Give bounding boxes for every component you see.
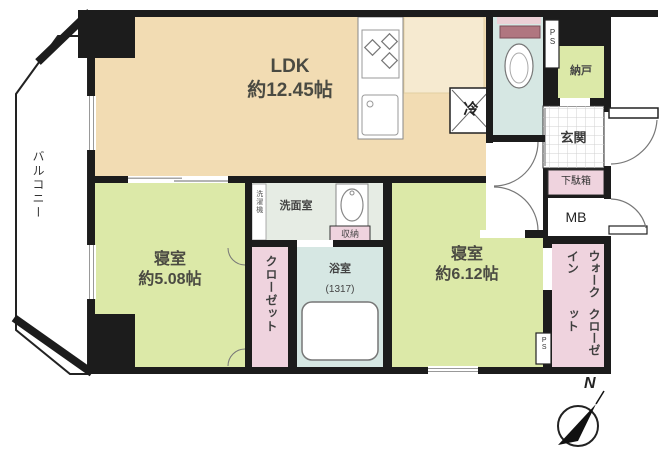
bathtub — [302, 302, 378, 360]
nando-label: 納戸 — [558, 65, 604, 79]
window-ldk — [87, 96, 96, 150]
wall-ldk-right — [486, 17, 493, 143]
mb-door-leaf — [609, 226, 647, 234]
ldk-size: 約12.45帖 — [247, 80, 333, 101]
bedroom-small-size: 約5.08帖 — [138, 271, 201, 288]
bathroom-name: 浴室 — [329, 263, 351, 275]
wic-line1: ウォークイン — [552, 250, 604, 308]
mb-label: MB — [548, 209, 604, 227]
toilet-bowl — [505, 44, 533, 88]
wall-closet-bath — [288, 247, 297, 374]
bathroom-label: 浴室 (1317) — [297, 258, 383, 298]
entrance-door-arc — [611, 120, 657, 164]
washroom-label: 洗面室 — [258, 200, 334, 214]
opening-bathroom — [297, 240, 333, 247]
closet-label: クローゼット — [263, 255, 278, 333]
mb-door-arc — [611, 199, 646, 228]
bedroom-large-name: 寝室 — [451, 246, 483, 263]
walk-in-closet-label: ウォークイン クローゼット — [552, 250, 604, 366]
floor-plan: LDK 約12.45帖 寝室 約5.08帖 寝室 約6.12帖 バルコニー 洗面… — [0, 0, 663, 459]
entrance-door-leaf — [609, 108, 658, 118]
ps-bottom-label: PS — [539, 337, 548, 351]
washbasin — [341, 189, 363, 221]
compass-needle-line — [596, 391, 604, 404]
wall-right-2 — [604, 166, 611, 199]
wall-bedroom-large-left — [383, 176, 392, 374]
wall-bottom — [128, 367, 611, 374]
storage-label: 収納 — [330, 229, 370, 240]
genkan-label: 玄関 — [543, 130, 604, 146]
window-bedroom-large — [428, 366, 478, 375]
toilet-tank — [500, 26, 540, 38]
bedroom-small-label: 寝室 約5.08帖 — [95, 250, 245, 290]
wall-bottom-left-block — [88, 314, 135, 374]
ps-top-label: PS — [547, 28, 557, 46]
bedroom-large-label: 寝室 約6.12帖 — [392, 245, 542, 285]
opening-wic — [543, 248, 552, 290]
laundry-label: 洗濯機 — [254, 190, 263, 214]
wall-bedroom-small-right — [245, 176, 252, 374]
wall-top — [88, 10, 658, 17]
wall-toilet-bottom — [491, 135, 545, 142]
sliding-door-ldk-bedroom — [128, 176, 228, 183]
compass-n-label: N — [584, 374, 596, 394]
bedroom-large-size: 約6.12帖 — [435, 266, 498, 283]
ldk-name: LDK — [270, 56, 309, 77]
ldk-label: LDK 約12.45帖 — [170, 55, 410, 103]
refrigerator-label: 冷 — [450, 101, 492, 120]
wall-right-3 — [604, 236, 611, 374]
wic-line2: クローゼット — [552, 308, 604, 366]
opening-nando — [560, 98, 590, 106]
bathroom-size: (1317) — [326, 284, 355, 295]
wall-right-1 — [604, 10, 611, 112]
getabako-label: 下駄箱 — [548, 176, 604, 189]
bedroom-small-name: 寝室 — [154, 251, 186, 268]
balcony-label: バルコニー — [30, 150, 45, 220]
opening-hall-bedroom — [480, 230, 525, 238]
kitchen-floor-zone — [404, 17, 484, 93]
opening-ldk-hall — [486, 143, 493, 176]
